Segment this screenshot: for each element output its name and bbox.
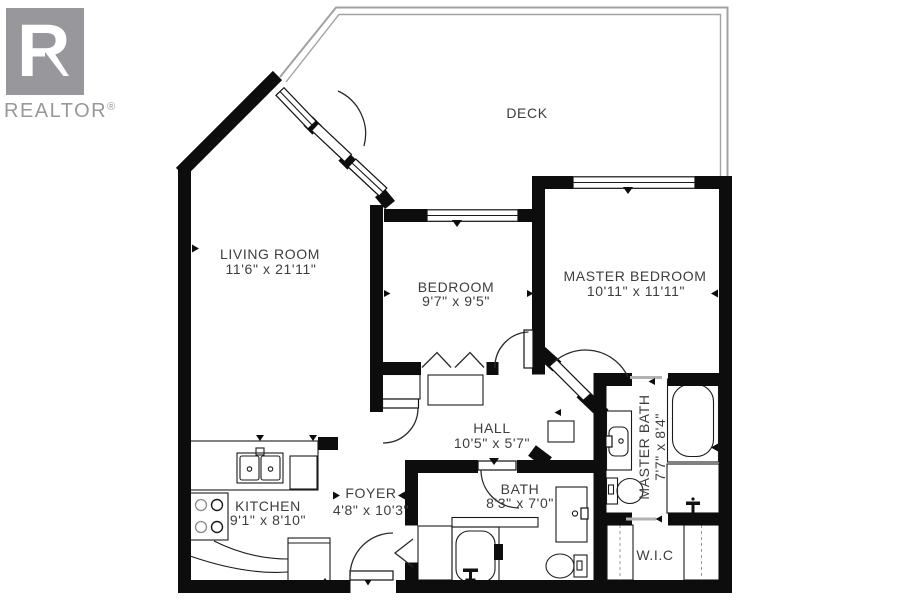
label-living-room: LIVING ROOM xyxy=(220,246,320,262)
deck-window-lower xyxy=(348,159,387,196)
counter-curve xyxy=(214,541,288,559)
fridge-icon xyxy=(288,538,330,583)
masterbath-tub-icon xyxy=(668,379,719,462)
label-wic: W.I.C xyxy=(636,547,673,563)
dims-master-bedroom: 10'11" x 11'11" xyxy=(587,283,685,299)
shower-head-icon xyxy=(463,569,478,582)
floor-plan-page: R REALTOR® xyxy=(0,0,901,600)
dims-bath: 8'3" x 7'0" xyxy=(486,495,554,511)
bathtub-icon xyxy=(452,527,499,586)
bedroom-door xyxy=(495,330,533,368)
kitchen-sink-icon xyxy=(237,448,283,483)
master-bedroom-window xyxy=(573,177,695,189)
label-hall: HALL xyxy=(473,420,510,436)
room-labels: DECK LIVING ROOM 11'6" x 21'11" BEDROOM … xyxy=(220,105,706,563)
floor-plan: R REALTOR® xyxy=(0,0,901,600)
dims-hall: 10'5" x 5'7" xyxy=(454,435,530,451)
masterbath-shower-head-icon xyxy=(686,502,700,506)
bedroom-closet-bifold-icon xyxy=(422,353,484,368)
deck-window-upper xyxy=(276,88,316,129)
dims-bedroom: 9'7" x 9'5" xyxy=(422,293,490,309)
entry-door xyxy=(350,533,393,580)
masterbath-sink-icon xyxy=(605,411,632,470)
deck-door xyxy=(312,91,366,162)
dims-foyer: 4'8" x 10'3" xyxy=(333,502,409,518)
label-master-bedroom: MASTER BEDROOM xyxy=(564,268,707,284)
foyer-closet xyxy=(418,526,452,580)
tub-ledge xyxy=(452,518,538,528)
label-master-bath: MASTER BATH xyxy=(636,394,652,499)
bath-sink-icon xyxy=(556,487,588,542)
bedroom-window xyxy=(427,210,518,222)
realtor-logo: R REALTOR® xyxy=(4,8,117,122)
stove-icon xyxy=(188,493,228,540)
shower-stall xyxy=(667,464,719,513)
bath-toilet-icon xyxy=(546,554,587,578)
hall-closet-door xyxy=(383,399,419,443)
dims-master-bath: 7'7" x 8'4" xyxy=(652,413,668,481)
realtor-wordmark: REALTOR® xyxy=(4,100,117,122)
label-foyer: FOYER xyxy=(345,485,396,501)
label-deck: DECK xyxy=(506,105,547,121)
dims-living-room: 11'6" x 21'11" xyxy=(226,261,317,277)
dims-kitchen: 9'1" x 8'10" xyxy=(230,512,306,528)
